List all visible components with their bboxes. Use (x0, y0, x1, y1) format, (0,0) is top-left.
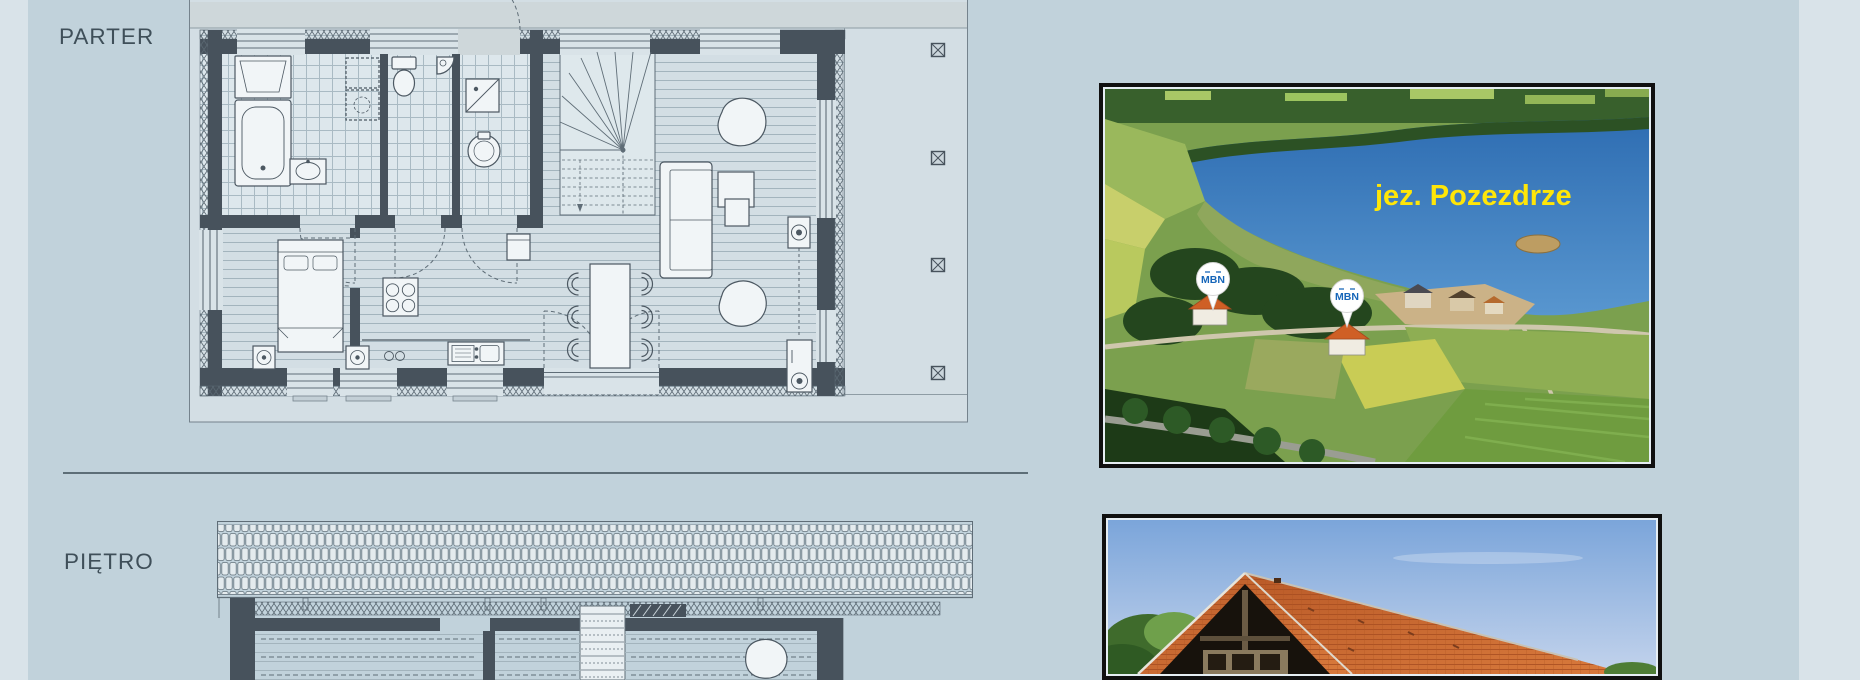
armchair-icon (719, 281, 766, 326)
photo-house-exterior[interactable] (1102, 514, 1662, 680)
floor-plan-parter-drawing (189, 0, 968, 423)
far-forest-band (1105, 89, 1649, 123)
chimney (580, 606, 625, 680)
page-margin-left (0, 0, 28, 680)
mbn-logo: MBN (1335, 291, 1359, 303)
bed-icon (278, 240, 343, 352)
shower-cabin-icon (466, 79, 499, 112)
floor-plan-parter[interactable] (189, 0, 968, 423)
roof-overhang-band (190, 2, 967, 28)
cloud (1393, 552, 1583, 564)
mbn-logo: MBN (1201, 274, 1225, 286)
section-divider (63, 472, 1028, 474)
photo-lake-aerial[interactable]: MBN MBN jez. Pozezdrze (1099, 83, 1655, 468)
shower-tray-icon (235, 56, 291, 98)
staircase-area (560, 52, 655, 215)
ground-floor-label: PARTER (59, 24, 154, 50)
upper-floor-label: PIĘTRO (64, 549, 154, 575)
bathroom-sink-icon (290, 159, 326, 184)
kitchen-sink-icon (448, 342, 504, 365)
floor-plan-pietro-drawing (217, 518, 973, 680)
toilet-icon (392, 57, 416, 96)
bathtub-icon (235, 100, 291, 186)
lake-caption: jez. Pozezdrze (1374, 180, 1572, 212)
roof-vent (1274, 578, 1281, 583)
sofa-icon (660, 162, 712, 278)
page-margin-right (1799, 0, 1860, 680)
dining-table-icon (590, 264, 630, 368)
island (1516, 235, 1560, 253)
stove-icon (383, 278, 418, 316)
attic-floor (255, 631, 817, 680)
floor-plan-pietro[interactable] (217, 518, 973, 680)
armchair-icon (718, 98, 766, 146)
lake-aerial-image: MBN MBN jez. Pozezdrze (1105, 89, 1649, 462)
armchair-icon (746, 639, 787, 678)
house-exterior-image (1108, 520, 1656, 674)
media-cabinet (787, 340, 812, 392)
